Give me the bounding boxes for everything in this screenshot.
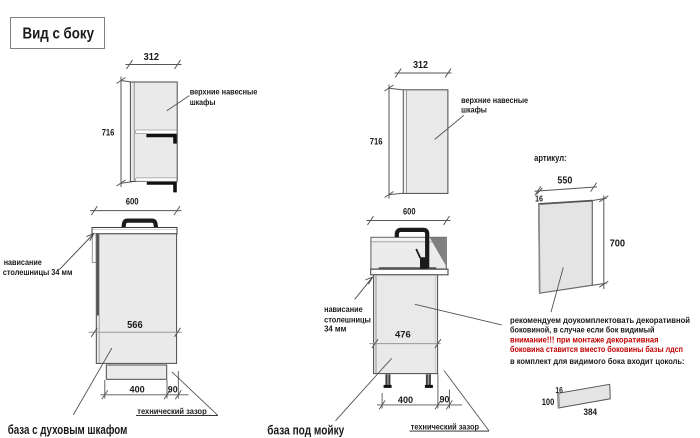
svg-text:нависание: нависание xyxy=(4,257,42,267)
svg-text:566: 566 xyxy=(127,320,143,331)
svg-text:технический зазор: технический зазор xyxy=(411,421,479,431)
svg-text:шкафы: шкафы xyxy=(190,97,216,107)
svg-text:476: 476 xyxy=(395,330,411,341)
svg-text:600: 600 xyxy=(126,196,139,207)
svg-text:шкафы: шкафы xyxy=(461,104,487,114)
svg-text:312: 312 xyxy=(144,52,160,63)
svg-text:400: 400 xyxy=(398,395,413,406)
svg-text:90: 90 xyxy=(168,385,178,396)
svg-text:Вид с боку: Вид с боку xyxy=(23,26,95,43)
svg-text:700: 700 xyxy=(610,239,626,250)
svg-text:716: 716 xyxy=(102,127,115,138)
svg-text:нависание: нависание xyxy=(324,304,363,314)
svg-text:столешницы 34 мм: столешницы 34 мм xyxy=(3,267,73,277)
svg-text:600: 600 xyxy=(403,207,416,218)
svg-text:34 мм: 34 мм xyxy=(324,324,346,334)
svg-text:боковина ставится вместо боков: боковина ставится вместо боковины базы л… xyxy=(510,344,683,354)
svg-text:технический зазор: технический зазор xyxy=(137,406,206,416)
svg-text:384: 384 xyxy=(584,407,598,417)
svg-text:100: 100 xyxy=(542,397,555,407)
svg-text:база под мойку: база под мойку xyxy=(267,424,344,438)
svg-text:400: 400 xyxy=(130,385,145,396)
svg-text:верхние навесные: верхние навесные xyxy=(190,87,258,97)
svg-text:90: 90 xyxy=(440,394,450,405)
svg-text:рекомендуем доукомплектовать д: рекомендуем доукомплектовать декоративно… xyxy=(510,315,690,325)
svg-text:боковиной, в случае если бок в: боковиной, в случае если бок видимый xyxy=(510,325,655,335)
svg-text:716: 716 xyxy=(370,137,383,148)
svg-text:внимание!!! при монтаже декора: внимание!!! при монтаже декоративная xyxy=(510,334,659,344)
svg-text:16: 16 xyxy=(535,194,543,204)
svg-text:в комплект для видимого бока в: в комплект для видимого бока входит цоко… xyxy=(510,356,685,366)
svg-text:база с духовым шкафом: база с духовым шкафом xyxy=(8,423,128,437)
svg-text:312: 312 xyxy=(413,60,428,71)
svg-text:артикул:: артикул: xyxy=(534,153,567,163)
svg-text:550: 550 xyxy=(557,176,572,187)
